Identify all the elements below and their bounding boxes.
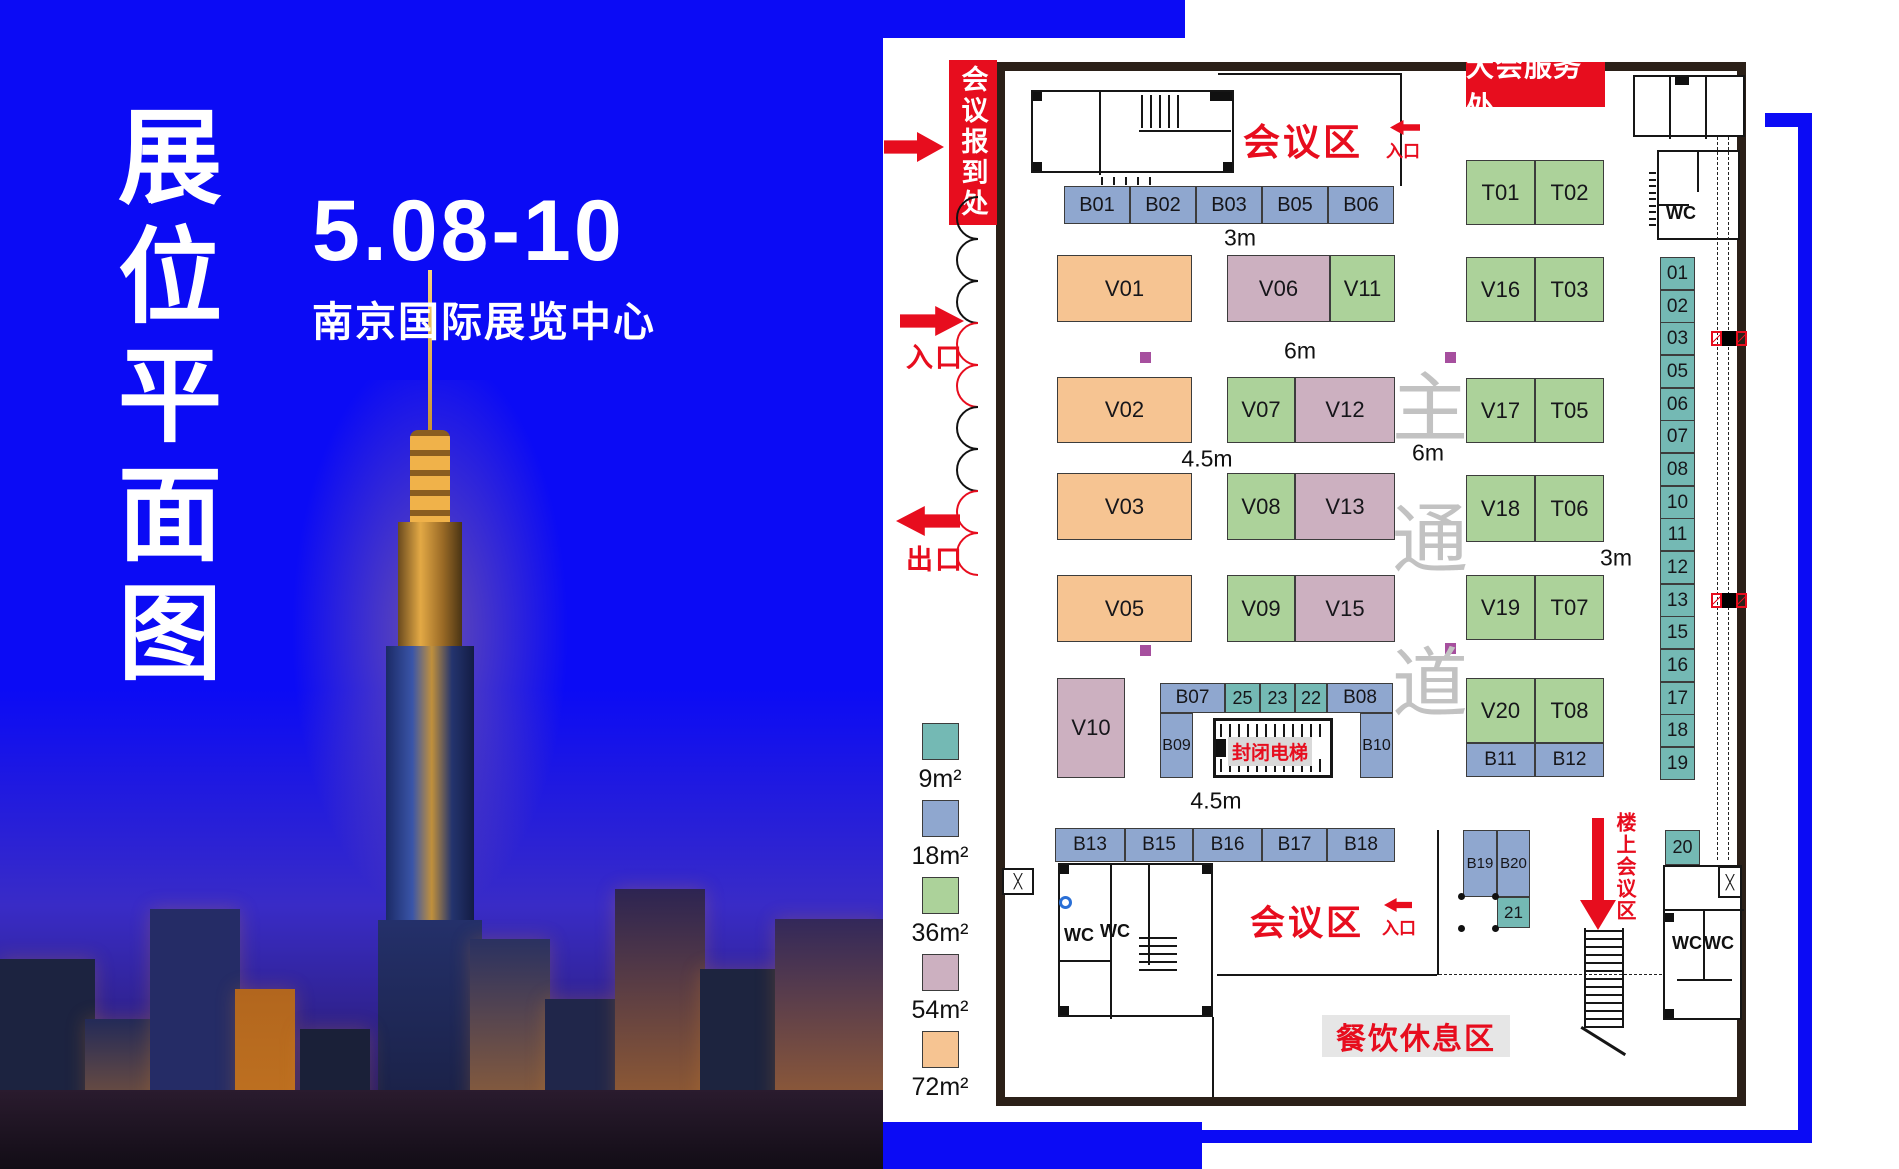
lane-dashed-line-2	[1728, 137, 1729, 860]
main-aisle-char: 道	[1392, 622, 1468, 732]
booth-02: 02	[1660, 290, 1695, 323]
booth-V09: V09	[1227, 575, 1295, 642]
photo-ground	[0, 1090, 883, 1169]
legend-label: 9m²	[918, 765, 961, 794]
booth-T01: T01	[1466, 160, 1535, 225]
wc-label-bottom-right-1: WC	[1672, 933, 1702, 954]
booth-B05: B05	[1262, 186, 1328, 224]
booth-21: 21	[1497, 897, 1530, 928]
booth-23: 23	[1260, 683, 1295, 713]
legend-swatch-54m²	[922, 954, 959, 991]
booth-B12: B12	[1535, 743, 1604, 777]
booth-T08: T08	[1535, 678, 1604, 743]
booth-25: 25	[1225, 683, 1260, 713]
booth-V05: V05	[1057, 575, 1192, 642]
wall-below-wc	[1212, 1017, 1214, 1097]
top-blue-strip	[883, 0, 1185, 38]
booth-08: 08	[1660, 453, 1695, 486]
booth-B15: B15	[1125, 828, 1193, 862]
poster-title-char: 展	[118, 100, 222, 219]
aisle-marker	[1140, 352, 1151, 363]
booth-V18: V18	[1466, 475, 1535, 542]
booth-05: 05	[1660, 355, 1695, 388]
hydrant-icon	[1059, 896, 1072, 909]
door-arc-icon	[956, 238, 1000, 282]
upstairs-label: 楼上会议区	[1610, 812, 1639, 922]
booth-V10: V10	[1057, 678, 1125, 778]
bottom-band-thick	[883, 1122, 1202, 1169]
dot-4	[1492, 925, 1499, 932]
booth-06: 06	[1660, 388, 1695, 421]
poster-title-char: 平	[118, 338, 222, 457]
legend-label: 72m²	[912, 1073, 969, 1102]
booth-T06: T06	[1535, 475, 1604, 542]
booth-B20: B20	[1497, 830, 1530, 897]
booth-B19: B19	[1463, 830, 1497, 897]
booth-17: 17	[1660, 682, 1695, 715]
upstairs-arrow-shaft	[1592, 818, 1604, 903]
top-right-wc-vents	[1649, 168, 1656, 226]
legend-label: 54m²	[912, 996, 969, 1025]
entrance-label: 入口	[906, 336, 964, 375]
bracket-right-bar	[1798, 113, 1812, 1143]
dimension-label: 6m	[1412, 440, 1444, 467]
registration-room-vents	[1099, 177, 1155, 185]
door-arc-icon	[956, 280, 1000, 324]
booth-V16: V16	[1466, 257, 1535, 322]
wc-label-bottom-right-2: WC	[1704, 933, 1734, 954]
dining-dashed-line	[1439, 974, 1667, 975]
legend-label: 36m²	[912, 919, 969, 948]
booth-B13: B13	[1055, 828, 1125, 862]
closed-elevator-label: 封闭电梯	[1228, 737, 1312, 766]
door-arc-icon	[956, 448, 1000, 492]
booth-V11: V11	[1330, 255, 1395, 322]
registration-room	[1031, 90, 1234, 173]
mail-box-icon: ╳	[1002, 868, 1034, 895]
booth-T03: T03	[1535, 257, 1604, 322]
legend-swatch-36m²	[922, 877, 959, 914]
stairs-bottom	[1584, 928, 1624, 1028]
poster-title-char: 位	[118, 219, 222, 338]
booth-V12: V12	[1295, 377, 1395, 443]
booth-20: 20	[1665, 830, 1700, 865]
entrance-arrow-icon	[900, 306, 964, 336]
aisle-marker	[1140, 645, 1151, 656]
lane-dashed-line-1	[1717, 137, 1718, 860]
door-arc-icon	[956, 406, 1000, 450]
booth-V19: V19	[1466, 575, 1535, 640]
legend-swatch-18m²	[922, 800, 959, 837]
poster-canvas: 展位平面图 5.08-10 南京国际展览中心 会议报到处 会议区 入口 大会服务…	[0, 0, 1899, 1169]
booth-15: 15	[1660, 616, 1695, 649]
column-symbol-2	[1711, 593, 1747, 608]
poster-venue: 南京国际展览中心	[312, 288, 656, 348]
booth-T05: T05	[1535, 378, 1604, 443]
conference-bottom-entrance-label: 入口	[1382, 914, 1416, 939]
booth-V03: V03	[1057, 473, 1192, 540]
booth-V07: V07	[1227, 377, 1295, 443]
dimension-label: 4.5m	[1190, 788, 1241, 815]
booth-V01: V01	[1057, 255, 1192, 322]
door-arc-icon	[956, 490, 1000, 534]
booth-22: 22	[1295, 683, 1327, 713]
duct-box-icon: ╳	[1718, 866, 1742, 898]
wc-label-bottom-left-2: WC	[1100, 921, 1130, 942]
booth-V08: V08	[1227, 473, 1295, 540]
bottom-band-thin	[1202, 1130, 1812, 1143]
booth-16: 16	[1660, 649, 1695, 682]
main-aisle-char: 通	[1392, 478, 1468, 588]
booth-B17: B17	[1262, 828, 1327, 862]
dot-2	[1458, 925, 1465, 932]
dimension-label: 3m	[1224, 225, 1256, 252]
booth-T02: T02	[1535, 160, 1604, 225]
dining-label: 餐饮休息区	[1336, 1014, 1496, 1058]
dining-banner: 餐饮休息区	[1322, 1015, 1510, 1057]
dot-3	[1492, 893, 1499, 900]
booth-01: 01	[1660, 257, 1695, 290]
dimension-label: 6m	[1284, 338, 1316, 365]
conference-top-entrance-label: 入口	[1386, 137, 1420, 162]
booth-B07: B07	[1160, 683, 1225, 713]
top-right-rooms	[1633, 75, 1745, 137]
service-desk-banner: 大会服务处	[1466, 62, 1605, 107]
wc-label-top-right: WC	[1666, 203, 1696, 224]
poster-title-char: 图	[118, 576, 222, 695]
booth-T07: T07	[1535, 575, 1604, 640]
booth-03: 03	[1660, 322, 1695, 355]
legend-swatch-72m²	[922, 1031, 959, 1068]
conference-area-bottom-label: 会议区	[1250, 895, 1364, 946]
booth-13: 13	[1660, 584, 1695, 617]
booth-B06: B06	[1328, 186, 1394, 224]
booth-V06: V06	[1227, 255, 1330, 322]
booth-18: 18	[1660, 714, 1695, 747]
booth-V02: V02	[1057, 377, 1192, 443]
booth-B10: B10	[1360, 713, 1393, 778]
poster-title-char: 面	[118, 457, 222, 576]
booth-V20: V20	[1466, 678, 1535, 743]
booth-11: 11	[1660, 518, 1695, 551]
dimension-label: 4.5m	[1181, 446, 1232, 473]
conference-top-outline-top	[1218, 73, 1400, 75]
booth-B16: B16	[1193, 828, 1262, 862]
booth-V17: V17	[1466, 378, 1535, 443]
wc-label-bottom-left-1: WC	[1064, 925, 1094, 946]
booth-07: 07	[1660, 420, 1695, 453]
legend-label: 18m²	[912, 842, 969, 871]
dimension-label: 3m	[1600, 545, 1632, 572]
registration-arrow-icon	[884, 132, 944, 162]
booth-12: 12	[1660, 551, 1695, 584]
legend-swatch-9m²	[922, 723, 959, 760]
booth-V13: V13	[1295, 473, 1395, 540]
booth-10: 10	[1660, 486, 1695, 519]
column-symbol-1	[1711, 331, 1747, 346]
booth-B18: B18	[1327, 828, 1395, 862]
conference-bottom-floor-line	[1217, 974, 1437, 976]
poster-title-vertical: 展位平面图	[110, 100, 230, 695]
booth-B01: B01	[1064, 186, 1130, 224]
booth-B03: B03	[1196, 186, 1262, 224]
dot-1	[1458, 893, 1465, 900]
booth-B11: B11	[1466, 743, 1535, 777]
conference-bottom-right-line	[1437, 830, 1439, 975]
booth-19: 19	[1660, 747, 1695, 780]
booth-B08: B08	[1327, 683, 1393, 713]
exit-label: 出口	[906, 538, 964, 577]
conference-area-top-label: 会议区	[1243, 112, 1363, 166]
booth-V15: V15	[1295, 575, 1395, 642]
exit-arrow-icon	[896, 506, 960, 536]
poster-date: 5.08-10	[312, 182, 625, 281]
booth-B09: B09	[1160, 713, 1193, 778]
booth-B02: B02	[1130, 186, 1196, 224]
